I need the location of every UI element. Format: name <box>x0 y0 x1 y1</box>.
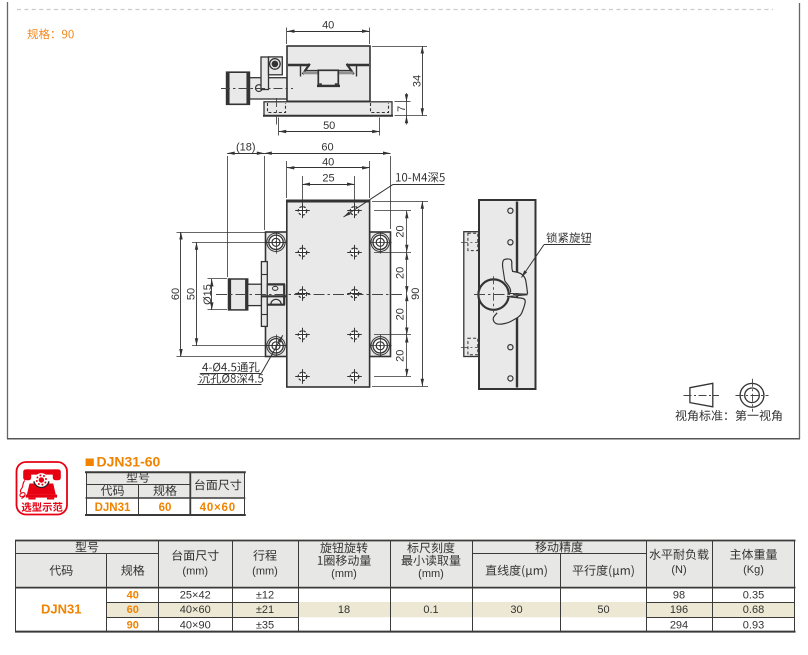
svg-text:25: 25 <box>322 173 334 185</box>
svg-text:40×90: 40×90 <box>180 620 211 632</box>
svg-text:DJN31: DJN31 <box>95 502 131 514</box>
svg-text:294: 294 <box>670 620 688 632</box>
svg-text:0.1: 0.1 <box>423 604 438 616</box>
svg-text:40: 40 <box>322 156 334 168</box>
svg-text:0.68: 0.68 <box>743 604 764 616</box>
svg-text:60: 60 <box>127 604 139 616</box>
svg-text:40×60: 40×60 <box>180 604 211 616</box>
svg-text:(N): (N) <box>671 564 686 576</box>
svg-text:DJN31-60: DJN31-60 <box>97 454 161 470</box>
svg-text:±12: ±12 <box>256 589 274 601</box>
svg-text:60: 60 <box>159 502 172 514</box>
svg-text:(mm): (mm) <box>252 565 278 577</box>
svg-text:40: 40 <box>322 20 334 32</box>
svg-text:20: 20 <box>394 267 406 279</box>
svg-text:90: 90 <box>410 288 422 300</box>
svg-text:Ø15: Ø15 <box>202 284 214 305</box>
svg-text:±21: ±21 <box>256 604 274 616</box>
svg-text:25×42: 25×42 <box>180 589 211 601</box>
svg-text:(mm): (mm) <box>182 565 208 577</box>
svg-text:34: 34 <box>411 75 423 87</box>
svg-text:98: 98 <box>673 589 685 601</box>
svg-text:60: 60 <box>170 288 182 300</box>
svg-text:40: 40 <box>127 589 139 601</box>
svg-text:(mm): (mm) <box>418 568 444 580</box>
svg-text:0.35: 0.35 <box>743 589 764 601</box>
svg-text:90: 90 <box>127 620 139 632</box>
svg-text:40×60: 40×60 <box>200 502 236 514</box>
svg-text:50: 50 <box>185 288 197 300</box>
svg-text:50: 50 <box>597 604 609 616</box>
svg-text:(Kg): (Kg) <box>743 564 764 576</box>
svg-text:30: 30 <box>510 604 522 616</box>
svg-text:50: 50 <box>323 120 335 132</box>
svg-text:60: 60 <box>321 142 333 154</box>
svg-text:±35: ±35 <box>256 620 274 632</box>
svg-text:20: 20 <box>394 225 406 237</box>
svg-text:20: 20 <box>394 308 406 320</box>
svg-text:(mm): (mm) <box>331 568 357 580</box>
svg-text:7: 7 <box>396 106 408 112</box>
svg-text:20: 20 <box>394 350 406 362</box>
svg-text:(18): (18) <box>236 142 256 154</box>
svg-text:0.93: 0.93 <box>743 620 764 632</box>
svg-text:DJN31: DJN31 <box>41 601 81 616</box>
svg-text:196: 196 <box>670 604 688 616</box>
svg-text:18: 18 <box>338 604 350 616</box>
